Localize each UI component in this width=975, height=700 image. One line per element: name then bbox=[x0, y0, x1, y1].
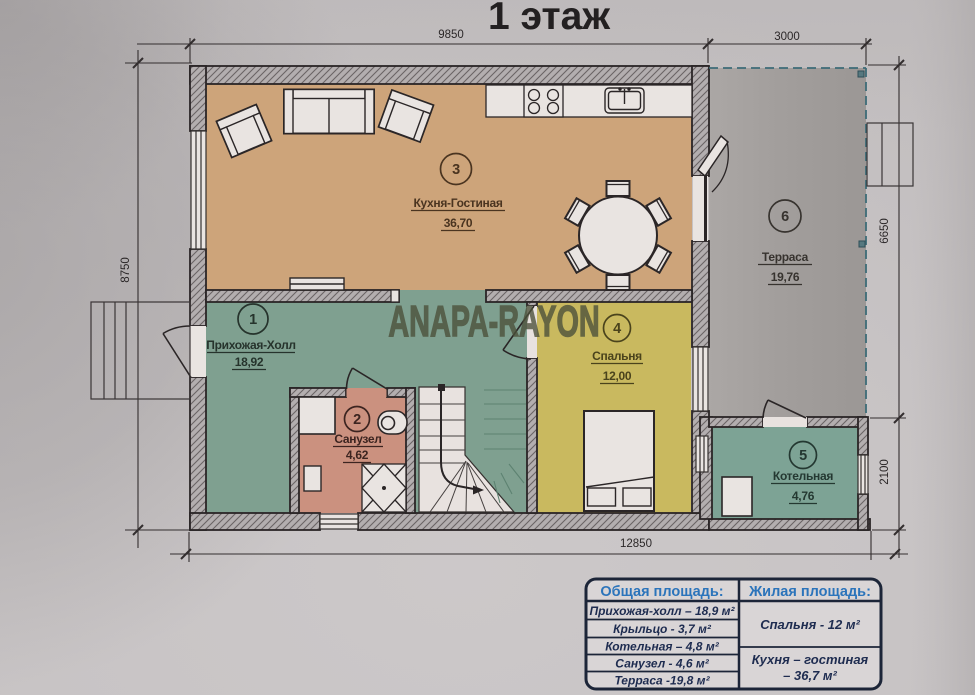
svg-text:Крыльцо - 3,7 м²: Крыльцо - 3,7 м² bbox=[613, 622, 712, 636]
svg-text:12,00: 12,00 bbox=[603, 369, 632, 383]
svg-text:6: 6 bbox=[781, 209, 789, 225]
svg-text:36,70: 36,70 bbox=[444, 216, 473, 230]
svg-text:19,76: 19,76 bbox=[771, 270, 800, 284]
svg-text:1: 1 bbox=[249, 312, 257, 328]
svg-text:2100: 2100 bbox=[879, 459, 891, 485]
svg-text:Котельная – 4,8 м²: Котельная – 4,8 м² bbox=[605, 640, 719, 654]
svg-text:3: 3 bbox=[452, 162, 460, 178]
svg-text:Санузел - 4,6 м²: Санузел - 4,6 м² bbox=[615, 657, 710, 671]
svg-text:Прихожая-холл – 18,9 м²: Прихожая-холл – 18,9 м² bbox=[589, 604, 735, 618]
svg-text:Спальня: Спальня bbox=[592, 349, 642, 363]
svg-text:Жилая площадь:: Жилая площадь: bbox=[748, 584, 871, 600]
svg-text:Терраса -19,8 м²: Терраса -19,8 м² bbox=[614, 674, 710, 688]
svg-text:Санузел: Санузел bbox=[334, 432, 381, 446]
svg-text:3000: 3000 bbox=[774, 31, 800, 43]
svg-text:– 36,7 м²: – 36,7 м² bbox=[783, 668, 837, 683]
svg-text:Прихожая-Холл: Прихожая-Холл bbox=[206, 338, 295, 352]
svg-text:ANAPA-RAYON: ANAPA-RAYON bbox=[388, 296, 599, 346]
svg-text:Кухня-Гостиная: Кухня-Гостиная bbox=[413, 196, 502, 210]
svg-text:4: 4 bbox=[613, 321, 621, 337]
svg-text:Кухня – гостиная: Кухня – гостиная bbox=[752, 652, 869, 667]
svg-text:6650: 6650 bbox=[879, 218, 891, 244]
svg-text:Спальня - 12 м²: Спальня - 12 м² bbox=[760, 617, 860, 632]
svg-text:1 этаж: 1 этаж bbox=[488, 0, 610, 38]
svg-text:Терраса: Терраса bbox=[762, 250, 809, 264]
svg-text:4,76: 4,76 bbox=[792, 489, 815, 503]
svg-text:Котельная: Котельная bbox=[773, 469, 833, 483]
svg-text:4,62: 4,62 bbox=[346, 448, 369, 462]
svg-text:8750: 8750 bbox=[120, 257, 132, 283]
svg-text:5: 5 bbox=[799, 448, 807, 464]
svg-text:12850: 12850 bbox=[620, 538, 652, 550]
svg-text:2: 2 bbox=[353, 412, 361, 428]
svg-text:18,92: 18,92 bbox=[235, 355, 264, 369]
svg-text:9850: 9850 bbox=[438, 29, 464, 41]
svg-text:Общая площадь:: Общая площадь: bbox=[600, 584, 723, 600]
